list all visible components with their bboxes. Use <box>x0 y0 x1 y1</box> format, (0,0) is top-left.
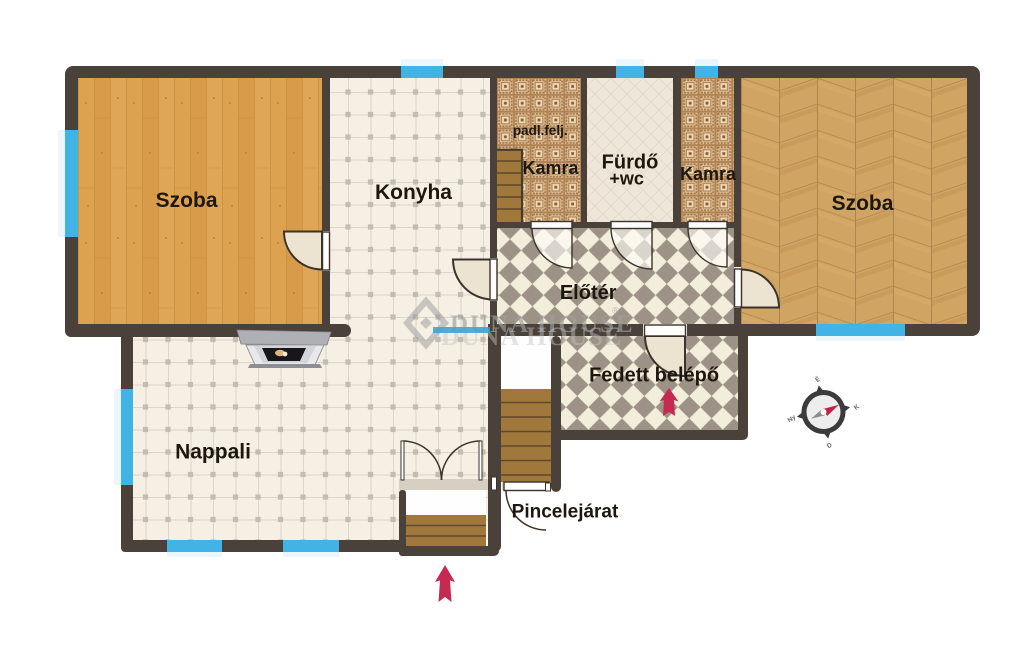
svg-text:Kamra: Kamra <box>680 164 737 184</box>
svg-text:Nappali: Nappali <box>175 441 251 464</box>
svg-text:DUNA HOUSE: DUNA HOUSE <box>441 322 622 351</box>
svg-text:+wc: +wc <box>609 169 644 189</box>
svg-text:Fedett belépő: Fedett belépő <box>589 365 719 387</box>
svg-text:®: ® <box>612 306 620 317</box>
svg-text:Konyha: Konyha <box>375 181 452 204</box>
svg-text:Kamra: Kamra <box>522 158 579 178</box>
svg-text:Szoba: Szoba <box>832 192 894 215</box>
svg-text:Pincelejárat: Pincelejárat <box>512 502 619 523</box>
svg-text:Szoba: Szoba <box>156 189 218 212</box>
svg-text:padl.felj.: padl.felj. <box>513 123 568 138</box>
svg-text:Előtér: Előtér <box>560 282 617 304</box>
